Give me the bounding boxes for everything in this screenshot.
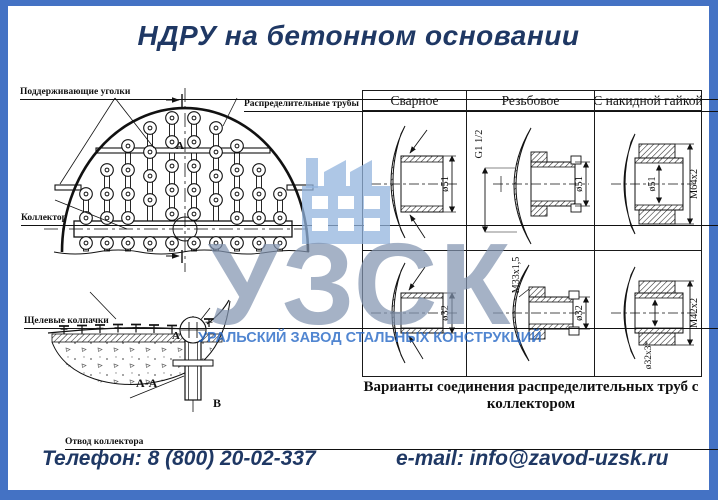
cell-union-51: ø51 M64x2 [595,112,701,251]
section-mark-a-bottom: А [172,330,718,342]
cell-union-32: ø32x3* M42x2 [595,251,701,376]
cell-threaded-32: M33x1,5 ø32 [467,251,595,376]
label-slotted-caps: Щелевые колпачки [24,317,718,329]
phone-number: Телефон: 8 (800) 20-02-337 [42,447,316,471]
weld-arrow [409,267,425,290]
dim-m64: M64x2 [689,169,700,199]
union-nut [639,281,675,293]
label-supporting-angles: Поддерживающие уголки [20,88,718,100]
cell-welded-51: ø51 [363,112,467,251]
label-collector-outlet: Отвод коллектора [65,438,718,450]
dim-dia51: ø51 [440,176,451,192]
section-title-aa: А-А [136,376,718,391]
dim-m33: M33x1,5 [511,257,522,293]
label-collector: Коллектор [21,214,718,226]
cell-welded-32: ø32 [363,251,467,376]
dim-dia32x3: ø32x3* [644,341,654,370]
section-mark-a-top: А [176,140,718,152]
page-title: НДРУ на бетонном основании [8,20,709,52]
dim-dia51: ø51 [574,176,585,192]
outlet-flange [173,360,213,366]
email-address: e-mail: info@zavod-uzsk.ru [396,447,669,471]
cell-threaded-51: G1 1/2 ø51 [467,112,595,251]
threaded-bushing [529,287,545,297]
drawing-sheet: НДРУ на бетонном основании [8,6,709,490]
page-frame: НДРУ на бетонном основании [0,0,718,500]
threaded-bushing [531,152,547,162]
detail-mark-b: В [213,396,718,411]
dim-dia51: ø51 [647,177,658,192]
label-distribution-pipes: Распределительные трубы [244,100,718,112]
